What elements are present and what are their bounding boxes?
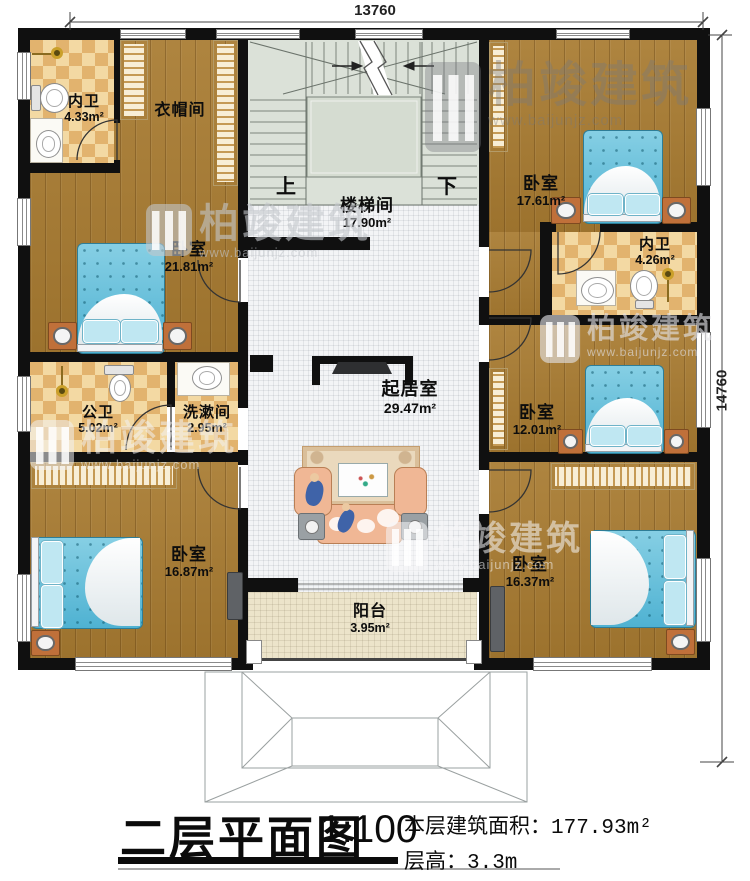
dimension-top: 13760 bbox=[345, 2, 405, 19]
stair-down-label: 下 bbox=[437, 170, 457, 199]
balcony-slider bbox=[298, 584, 463, 589]
dimension-right: 14760 bbox=[714, 361, 731, 421]
plan-scale: 1:100 bbox=[320, 808, 418, 852]
stair-break-line bbox=[358, 41, 392, 95]
stair-landing bbox=[307, 97, 421, 177]
porch-roof-outline bbox=[205, 672, 527, 802]
stair-up-label: 上 bbox=[276, 170, 296, 199]
title-underline-thick bbox=[118, 857, 398, 864]
floor-area-row: 本层建筑面积：177.93m² bbox=[404, 810, 652, 840]
floor-area-label: 本层建筑面积： bbox=[404, 815, 551, 838]
floor-height-label: 层高： bbox=[404, 850, 467, 873]
door-arcs bbox=[77, 120, 600, 512]
floor-plan-page: 内卫4.33m² 衣帽间 楼梯间17.90m² 卧室21.81m² 卧室17.6… bbox=[0, 0, 750, 881]
floor-height-value: 3.3m bbox=[467, 852, 517, 875]
floor-height-row: 层高：3.3m bbox=[404, 845, 517, 875]
floor-area-value: 177.93m² bbox=[551, 817, 652, 840]
plan-linework-svg bbox=[0, 0, 750, 881]
